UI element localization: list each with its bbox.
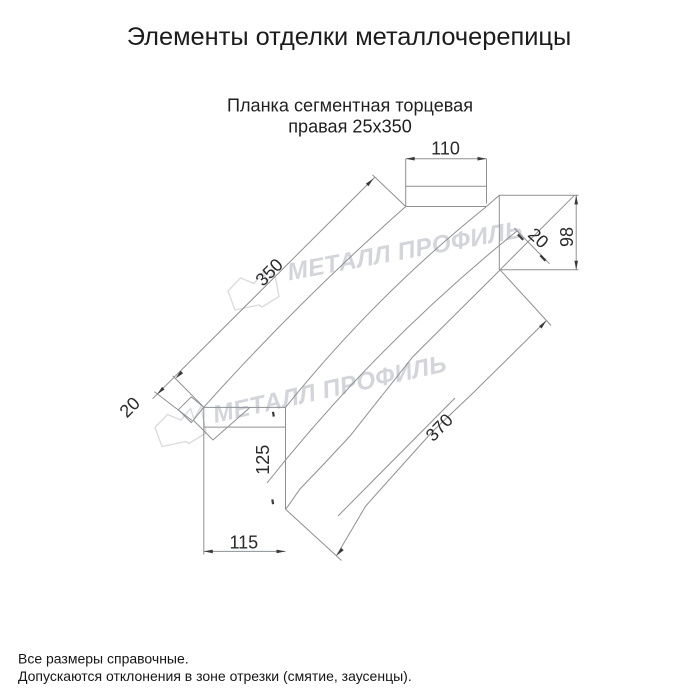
svg-text:Элементы отделки металлочерепи: Элементы отделки металлочерепицы [127, 23, 571, 51]
svg-text:98: 98 [557, 227, 577, 247]
svg-text:110: 110 [431, 139, 460, 159]
svg-text:115: 115 [229, 533, 258, 553]
svg-text:125: 125 [253, 445, 273, 475]
svg-text:Планка сегментная торцевая: Планка сегментная торцевая [227, 96, 473, 116]
svg-text:правая 25х350: правая 25х350 [288, 117, 412, 137]
svg-text:Все размеры справочные.: Все размеры справочные. [18, 651, 189, 667]
svg-text:Допускаются отклонения в зоне: Допускаются отклонения в зоне отрезки (с… [18, 668, 412, 684]
